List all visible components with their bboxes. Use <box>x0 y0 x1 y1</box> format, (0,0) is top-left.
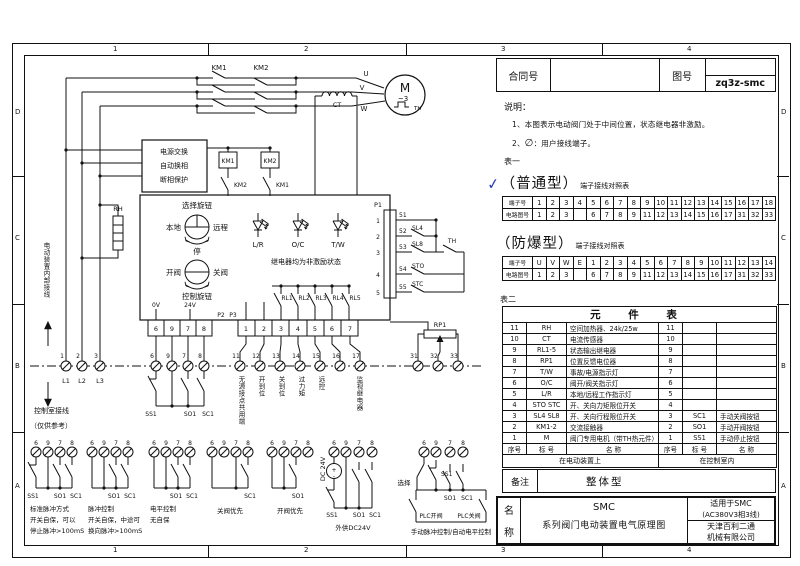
terminal-cell: 15 <box>722 197 736 209</box>
component-cell: 11 <box>503 323 527 334</box>
apply-line1: 适用于SMC <box>688 498 774 509</box>
g-term: 7 <box>176 440 180 447</box>
drawing-no-value: zq3z-smc <box>706 76 776 91</box>
g1-caption: 停止脉冲>100mS <box>30 526 84 535</box>
sc1-label: SC1 <box>202 411 214 418</box>
company-line1: 天津百利二通 <box>688 521 774 532</box>
terminal-cell: U <box>533 257 547 269</box>
terminal-cell: 14 <box>762 257 776 269</box>
term-no: 9 <box>166 353 170 360</box>
terminal-cell: 13 <box>695 197 709 209</box>
internal-wiring-note: 电动装置内部接线 <box>41 242 50 342</box>
component-cell: O/C <box>527 378 567 389</box>
wires <box>30 78 486 522</box>
component-cell: 阀开/阀关指示灯 <box>567 378 659 389</box>
drawing-no-blank <box>706 59 776 76</box>
g2-so1: SO1 <box>108 493 121 500</box>
terminal-cell: 33 <box>762 209 776 221</box>
g3-so1: SO1 <box>170 493 183 500</box>
remark-value: 整体型 <box>538 470 775 492</box>
row-label: 电路图号 <box>503 209 533 221</box>
terminal-cell: 15 <box>695 269 709 281</box>
component-row: 5L/R本地/远程工作指示灯5 <box>503 389 777 400</box>
component-cell: 位置反馈电位器 <box>567 356 659 367</box>
component-cell: 10 <box>503 334 527 345</box>
lamp-lr-label: L/R <box>252 241 263 249</box>
terminal-cell: 16 <box>735 197 749 209</box>
terminal-cell: W <box>560 257 574 269</box>
component-cell: 6 <box>503 378 527 389</box>
relay-state-note: 继电器均为非激励状态 <box>271 257 341 266</box>
stc-label: STC <box>412 281 423 288</box>
plc-open-label: PLC开阀 <box>419 512 442 520</box>
component-row: 7T/W事故/电源指示灯7 <box>503 367 777 378</box>
g7-caption: 手动脉冲控制/自动电平控制 <box>411 527 492 536</box>
component-row: 4STO STC开、关向力矩限位开关4 <box>503 400 777 411</box>
terminal-cell: 1 <box>587 257 601 269</box>
terminal-cell: 4 <box>573 197 587 209</box>
component-row: 11RH空间加热器、24k/25w11 <box>503 323 777 334</box>
g-term: 6 <box>90 440 94 447</box>
sl4-label: SL4 <box>412 225 423 232</box>
component-cell: 3 <box>659 411 683 422</box>
g3-sc1: SC1 <box>186 493 198 500</box>
explosion-row1: 端子号UVWE1234567891011121314 <box>503 257 776 269</box>
terminal-cell: 1 <box>533 209 547 221</box>
g-term: 6 <box>152 440 156 447</box>
component-cell: 7 <box>503 367 527 378</box>
terminal-cell: 8 <box>627 197 641 209</box>
component-cell: SO1 <box>683 422 717 433</box>
term-no: 14 <box>292 353 300 360</box>
g5-so1: SO1 <box>292 493 305 500</box>
component-cell <box>683 400 717 411</box>
notes-heading: 说明： <box>504 100 774 113</box>
component-cell: 11 <box>659 323 683 334</box>
component-cell: 3 <box>503 411 527 422</box>
g3-caption: 电平控制 <box>150 504 177 513</box>
th-label: TH <box>447 238 456 245</box>
lamp-tw-icon <box>333 213 349 237</box>
p3-label: P3 <box>229 312 237 319</box>
sl8-label: SL8 <box>412 241 423 248</box>
component-cell: 2 <box>659 422 683 433</box>
component-cell: 手动停止按钮 <box>717 433 777 444</box>
component-row: 1M阀门专用电机（带TH热元件）1SS1手动停止按钮 <box>503 433 777 444</box>
name-label-bottom: 称 <box>504 524 514 539</box>
ann-common: 无源接点共用端 <box>236 376 245 456</box>
dc-minus: - <box>333 473 335 480</box>
terminal-cell: 32 <box>749 209 763 221</box>
component-cell <box>683 345 717 356</box>
name-label: 名 称 <box>498 498 521 543</box>
component-cell: RP1 <box>527 356 567 367</box>
terminal-cell: 13 <box>749 257 763 269</box>
terminal-cell: 11 <box>668 197 682 209</box>
g-term: 6 <box>422 440 426 447</box>
g7-sc1: SC1 <box>461 495 473 502</box>
component-cell <box>683 356 717 367</box>
g-term: 7 <box>58 440 62 447</box>
component-cell: 交流接触器 <box>567 422 659 433</box>
p3-cell: 5 <box>313 325 317 333</box>
term-55: 55 <box>399 284 407 291</box>
motor-m: M <box>400 81 410 95</box>
term-no: 16 <box>332 353 340 360</box>
terminal-cell: 14 <box>681 209 695 221</box>
remark-block: 备注 整体型 <box>502 469 776 493</box>
company-line2: 机械有限公司 <box>688 532 774 543</box>
component-row: 10CT电流传感器10 <box>503 334 777 345</box>
component-cell: 8 <box>659 356 683 367</box>
note-2: 2、∅：用户接线端子。 <box>504 138 774 149</box>
component-row: 9RL1-5状态输出继电器9 <box>503 345 777 356</box>
terminal-cell: 18 <box>762 197 776 209</box>
right-location: 在控制室内 <box>659 455 777 468</box>
terminal-cell: V <box>546 257 560 269</box>
g-term: 8 <box>126 440 130 447</box>
row-label: 电路图号 <box>503 269 533 281</box>
terminal-cell: 2 <box>546 197 560 209</box>
location-row: 在电动装置上 在控制室内 <box>503 455 777 468</box>
control-knob-label: 控制旋钮 <box>182 291 212 301</box>
ctrl-room-note: 控制室接线 <box>34 406 69 415</box>
terminal-cell: 11 <box>641 209 655 221</box>
component-cell: 7 <box>659 367 683 378</box>
terminal-cell: 3 <box>614 257 628 269</box>
phase-u: U <box>363 70 368 78</box>
sto-label: STO <box>412 263 424 270</box>
row-label: 端子号 <box>503 257 533 269</box>
so1-label: SO1 <box>184 411 197 418</box>
g-term: 9 <box>282 440 286 447</box>
p3-cell: 1 <box>244 325 248 333</box>
terminal-cell: 2 <box>600 257 614 269</box>
local-label: 本地 <box>166 222 181 232</box>
p2-cell: 8 <box>202 325 206 333</box>
l1-label: L1 <box>62 377 70 385</box>
terminal-cell <box>573 209 587 221</box>
name-label-top: 名 <box>504 502 514 517</box>
junction-dots <box>46 76 464 509</box>
terminal-cell: 33 <box>762 269 776 281</box>
component-cell <box>717 389 777 400</box>
p2-label: P2 <box>217 312 225 319</box>
p1-label: P1 <box>374 201 382 209</box>
contract-label: 合同号 <box>497 59 551 91</box>
terminal-cell: 5 <box>641 257 655 269</box>
hdr-no: 序号 <box>503 444 527 455</box>
g-term: 8 <box>370 440 374 447</box>
p3-cell: 4 <box>296 325 300 333</box>
terminal-cell: 6 <box>600 197 614 209</box>
pwr-line3: 断相保护 <box>160 175 188 184</box>
component-cell: M <box>527 433 567 444</box>
terminal-cell: 9 <box>627 209 641 221</box>
label-24v: 24V <box>184 302 197 309</box>
p2-cell: 6 <box>154 325 158 333</box>
hdr-no2: 序号 <box>659 444 683 455</box>
component-cell: CT <box>527 334 567 345</box>
g-term: 7 <box>114 440 118 447</box>
terminal-cell: 10 <box>708 257 722 269</box>
terminal-cell: 3 <box>560 269 574 281</box>
check-mark: ✓ <box>486 174 501 194</box>
phase-v: V <box>360 84 365 92</box>
g2-sc1: SC1 <box>124 493 136 500</box>
component-cell <box>683 367 717 378</box>
g1-so1: SO1 <box>54 493 67 500</box>
terminal-cell: 7 <box>600 209 614 221</box>
rl5-label: RL5 <box>349 295 361 302</box>
schematic-labels: KM1 KM2 U V W M ~3 TH CT 电源交换 自动换相 断相保护 … <box>27 64 491 536</box>
lamp-oc-label: O/C <box>292 241 305 249</box>
terminal-cell: 9 <box>641 197 655 209</box>
g6-ss1: SS1 <box>326 512 338 519</box>
p1-pin: 1 <box>376 218 380 225</box>
terminal-cell: 14 <box>681 269 695 281</box>
terminal-cell: 3 <box>560 209 574 221</box>
g2-caption: 开关自保，中途可 <box>88 515 141 524</box>
terminal-cell: 2 <box>546 209 560 221</box>
g-term: 6 <box>270 440 274 447</box>
pwr-line2: 自动换相 <box>160 161 188 170</box>
terminal-cell: 16 <box>708 209 722 221</box>
component-header-row: 序号 标 号 名 称 序号 标 号 名 称 <box>503 444 777 455</box>
l2-label: L2 <box>78 377 86 385</box>
term-no: 17 <box>352 353 360 360</box>
explosion-subtitle: 端子接线对照表 <box>576 241 625 253</box>
terminal-cell: 15 <box>695 209 709 221</box>
apply-line2: (AC380V3相3线) <box>688 509 774 521</box>
ann-monitor-relay: 监视继电器 <box>354 376 363 436</box>
terminal-cell: 11 <box>641 269 655 281</box>
term-no: 12 <box>252 353 260 360</box>
component-cell: 空间加热器、24k/25w <box>567 323 659 334</box>
component-cell <box>717 345 777 356</box>
terminal-cell: 6 <box>587 209 601 221</box>
component-cell: 开、关向行程限位开关 <box>567 411 659 422</box>
terminal-cell: 6 <box>587 269 601 281</box>
component-cell: 开、关向力矩限位开关 <box>567 400 659 411</box>
motor-th: TH <box>413 106 422 112</box>
g6-so1: SO1 <box>353 512 366 519</box>
component-row: 8RP1位置反馈电位器8 <box>503 356 777 367</box>
g6-caption: 外供DC24V <box>335 523 371 532</box>
p3-cell: 3 <box>279 325 283 333</box>
component-cell: T/W <box>527 367 567 378</box>
hdr-tag: 标 号 <box>527 444 567 455</box>
ordinary-heading: ✓ （普通型） 端子接线对照表 <box>487 172 629 193</box>
title-block: 合同号 图号 zq3z-smc <box>496 58 776 92</box>
rl1-label: RL1 <box>281 295 293 302</box>
component-cell: 1 <box>503 433 527 444</box>
ann-remote: 远控 <box>316 376 325 406</box>
term-no: 15 <box>312 353 320 360</box>
terminal-cell: 4 <box>627 257 641 269</box>
g3-caption: 无自保 <box>150 515 170 524</box>
drawing-title-line2: 系列阀门电动装置电气原理图 <box>521 518 687 531</box>
left-location: 在电动装置上 <box>503 455 659 468</box>
component-cell: 6 <box>659 378 683 389</box>
term-51: 51 <box>399 212 407 219</box>
ordinary-title: （普通型） <box>501 172 579 193</box>
ordinary-subtitle: 端子接线对照表 <box>580 181 629 193</box>
g-term: 8 <box>188 440 192 447</box>
g-term: 9 <box>46 440 50 447</box>
stop-label: 停 <box>193 246 201 256</box>
component-cell <box>717 378 777 389</box>
component-cell <box>717 356 777 367</box>
ordinary-terminal-table: 端子号123456789101112131415161718 电路图号12367… <box>502 196 776 221</box>
g7-so1: SO1 <box>444 495 457 502</box>
km2-interlock: KM2 <box>234 182 247 189</box>
component-cell: SS1 <box>683 433 717 444</box>
terminal-symbol: ∅ <box>525 138 534 149</box>
component-cell: 9 <box>503 345 527 356</box>
term-no: 7 <box>182 353 186 360</box>
lamp-lr-icon <box>253 213 269 237</box>
term-no: 11 <box>232 353 240 360</box>
g-term: 9 <box>344 440 348 447</box>
dc24v-label: DC 24V <box>319 449 327 489</box>
p1-pin: 4 <box>376 272 380 279</box>
explosion-heading: （防爆型） 端子接线对照表 <box>496 232 625 253</box>
component-cell: 5 <box>503 389 527 400</box>
g-term: 8 <box>70 440 74 447</box>
terminal-cell: 12 <box>654 269 668 281</box>
component-cell: 事故/电源指示灯 <box>567 367 659 378</box>
km1-interlock: KM1 <box>276 182 289 189</box>
p3-cell: 7 <box>348 325 352 333</box>
terminal-cell: 12 <box>735 257 749 269</box>
component-cell: 10 <box>659 334 683 345</box>
p1-pin: 5 <box>376 290 380 297</box>
component-cell <box>717 323 777 334</box>
g-term: 9 <box>222 440 226 447</box>
term-no: 13 <box>272 353 280 360</box>
component-cell: 2 <box>503 422 527 433</box>
table2-label: 表二 <box>500 294 516 305</box>
terminal-cell: 17 <box>722 269 736 281</box>
terminal-cell: 7 <box>614 197 628 209</box>
label-0v: 0V <box>152 302 161 309</box>
ct-label: CT <box>333 101 342 109</box>
note-2-prefix: 2、 <box>512 139 525 148</box>
ann-close-pos: 关到位 <box>276 376 285 416</box>
pwr-line1: 电源交换 <box>160 147 188 156</box>
component-cell <box>683 323 717 334</box>
rl3-label: RL3 <box>315 295 327 302</box>
component-cell: 4 <box>503 400 527 411</box>
component-cell: 电流传感器 <box>567 334 659 345</box>
term-53: 53 <box>399 244 407 251</box>
rl4-label: RL4 <box>332 295 344 302</box>
terminal-cell: 11 <box>722 257 736 269</box>
component-table: 元 件 表 11RH空间加热器、24k/25w1110CT电流传感器109RL1… <box>502 306 777 468</box>
rl2-label: RL2 <box>298 295 310 302</box>
g1-sc1: SC1 <box>70 493 82 500</box>
ann-over-torque: 过力矩 <box>296 376 305 416</box>
component-cell: SC1 <box>683 411 717 422</box>
ordinary-row1: 端子号123456789101112131415161718 <box>503 197 776 209</box>
lamp-oc-icon <box>293 213 309 237</box>
drawing-title-line1: SMC <box>521 502 687 513</box>
rh-label: RH <box>113 205 123 213</box>
terminal-cell: 1 <box>533 269 547 281</box>
component-cell: 8 <box>503 356 527 367</box>
term-no: 2 <box>76 353 80 360</box>
terminal-cell: 2 <box>546 269 560 281</box>
terminal-cell: 6 <box>654 257 668 269</box>
plc-close-label: PLC关阀 <box>457 512 480 520</box>
hdr-name2: 名 称 <box>717 444 777 455</box>
ordinary-row2: 电路图号123678911121314151617313233 <box>503 209 776 221</box>
hdr-tag2: 标 号 <box>683 444 717 455</box>
component-cell: 4 <box>659 400 683 411</box>
terminal-cell: 7 <box>668 257 682 269</box>
name-block: 名 称 SMC 系列阀门电动装置电气原理图 适用于SMC (AC380V3相3线… <box>496 496 776 545</box>
terminal-cell: 8 <box>614 269 628 281</box>
row-label: 端子号 <box>503 197 533 209</box>
p2-cell: 9 <box>170 325 174 333</box>
g1-caption: 开关自保，可以 <box>30 515 76 524</box>
g-term: 7 <box>294 440 298 447</box>
g-term: 9 <box>164 440 168 447</box>
g7-select: 选择 <box>398 478 412 487</box>
lamp-tw-label: T/W <box>330 241 345 249</box>
component-cell <box>683 378 717 389</box>
component-cell: 5 <box>659 389 683 400</box>
explosion-title: （防爆型） <box>496 232 574 253</box>
component-cell: 手动关阀按钮 <box>717 411 777 422</box>
remote-label: 远程 <box>213 223 228 232</box>
terminal-cell: 1 <box>533 197 547 209</box>
terminal-cell: 31 <box>735 269 749 281</box>
term-no: 31 <box>410 353 418 360</box>
remark-label: 备注 <box>503 470 538 492</box>
terminal-cell: 5 <box>587 197 601 209</box>
g2-caption: 脉冲控制 <box>88 504 115 513</box>
component-cell: KM1-2 <box>527 422 567 433</box>
g6-sc1: SC1 <box>369 512 381 519</box>
km2-coil-label: KM2 <box>264 158 277 165</box>
km2-label: KM2 <box>253 64 268 72</box>
terminal-cell: 9 <box>627 269 641 281</box>
component-cell: 手动开阀按钮 <box>717 422 777 433</box>
component-row: 2KM1-2交流接触器2SO1手动开阀按钮 <box>503 422 777 433</box>
g2-caption: 换向脉冲>100mS <box>88 526 142 535</box>
g-term: 9 <box>102 440 106 447</box>
terminal-cell: 13 <box>668 269 682 281</box>
terminal-cell: 31 <box>735 209 749 221</box>
terminal-cell: 12 <box>654 209 668 221</box>
component-cell: L/R <box>527 389 567 400</box>
drawing-title: SMC 系列阀门电动装置电气原理图 <box>521 498 688 543</box>
p2-cell: 7 <box>186 325 190 333</box>
component-cell: RH <box>527 323 567 334</box>
terminal-cell: E <box>573 257 587 269</box>
ctrl-room-note2: （仅供参考） <box>30 421 72 430</box>
component-cell <box>717 334 777 345</box>
contract-value <box>551 59 660 91</box>
hdr-name: 名 称 <box>567 444 659 455</box>
p1-pin: 2 <box>376 234 380 241</box>
notes: 说明： 1、本图表示电动阀门处于中间位置，状态继电器非激励。 2、∅：用户接线端… <box>504 100 774 157</box>
p3-cell: 6 <box>330 325 334 333</box>
g-term: 8 <box>306 440 310 447</box>
motor-3ph: ~3 <box>398 95 408 103</box>
